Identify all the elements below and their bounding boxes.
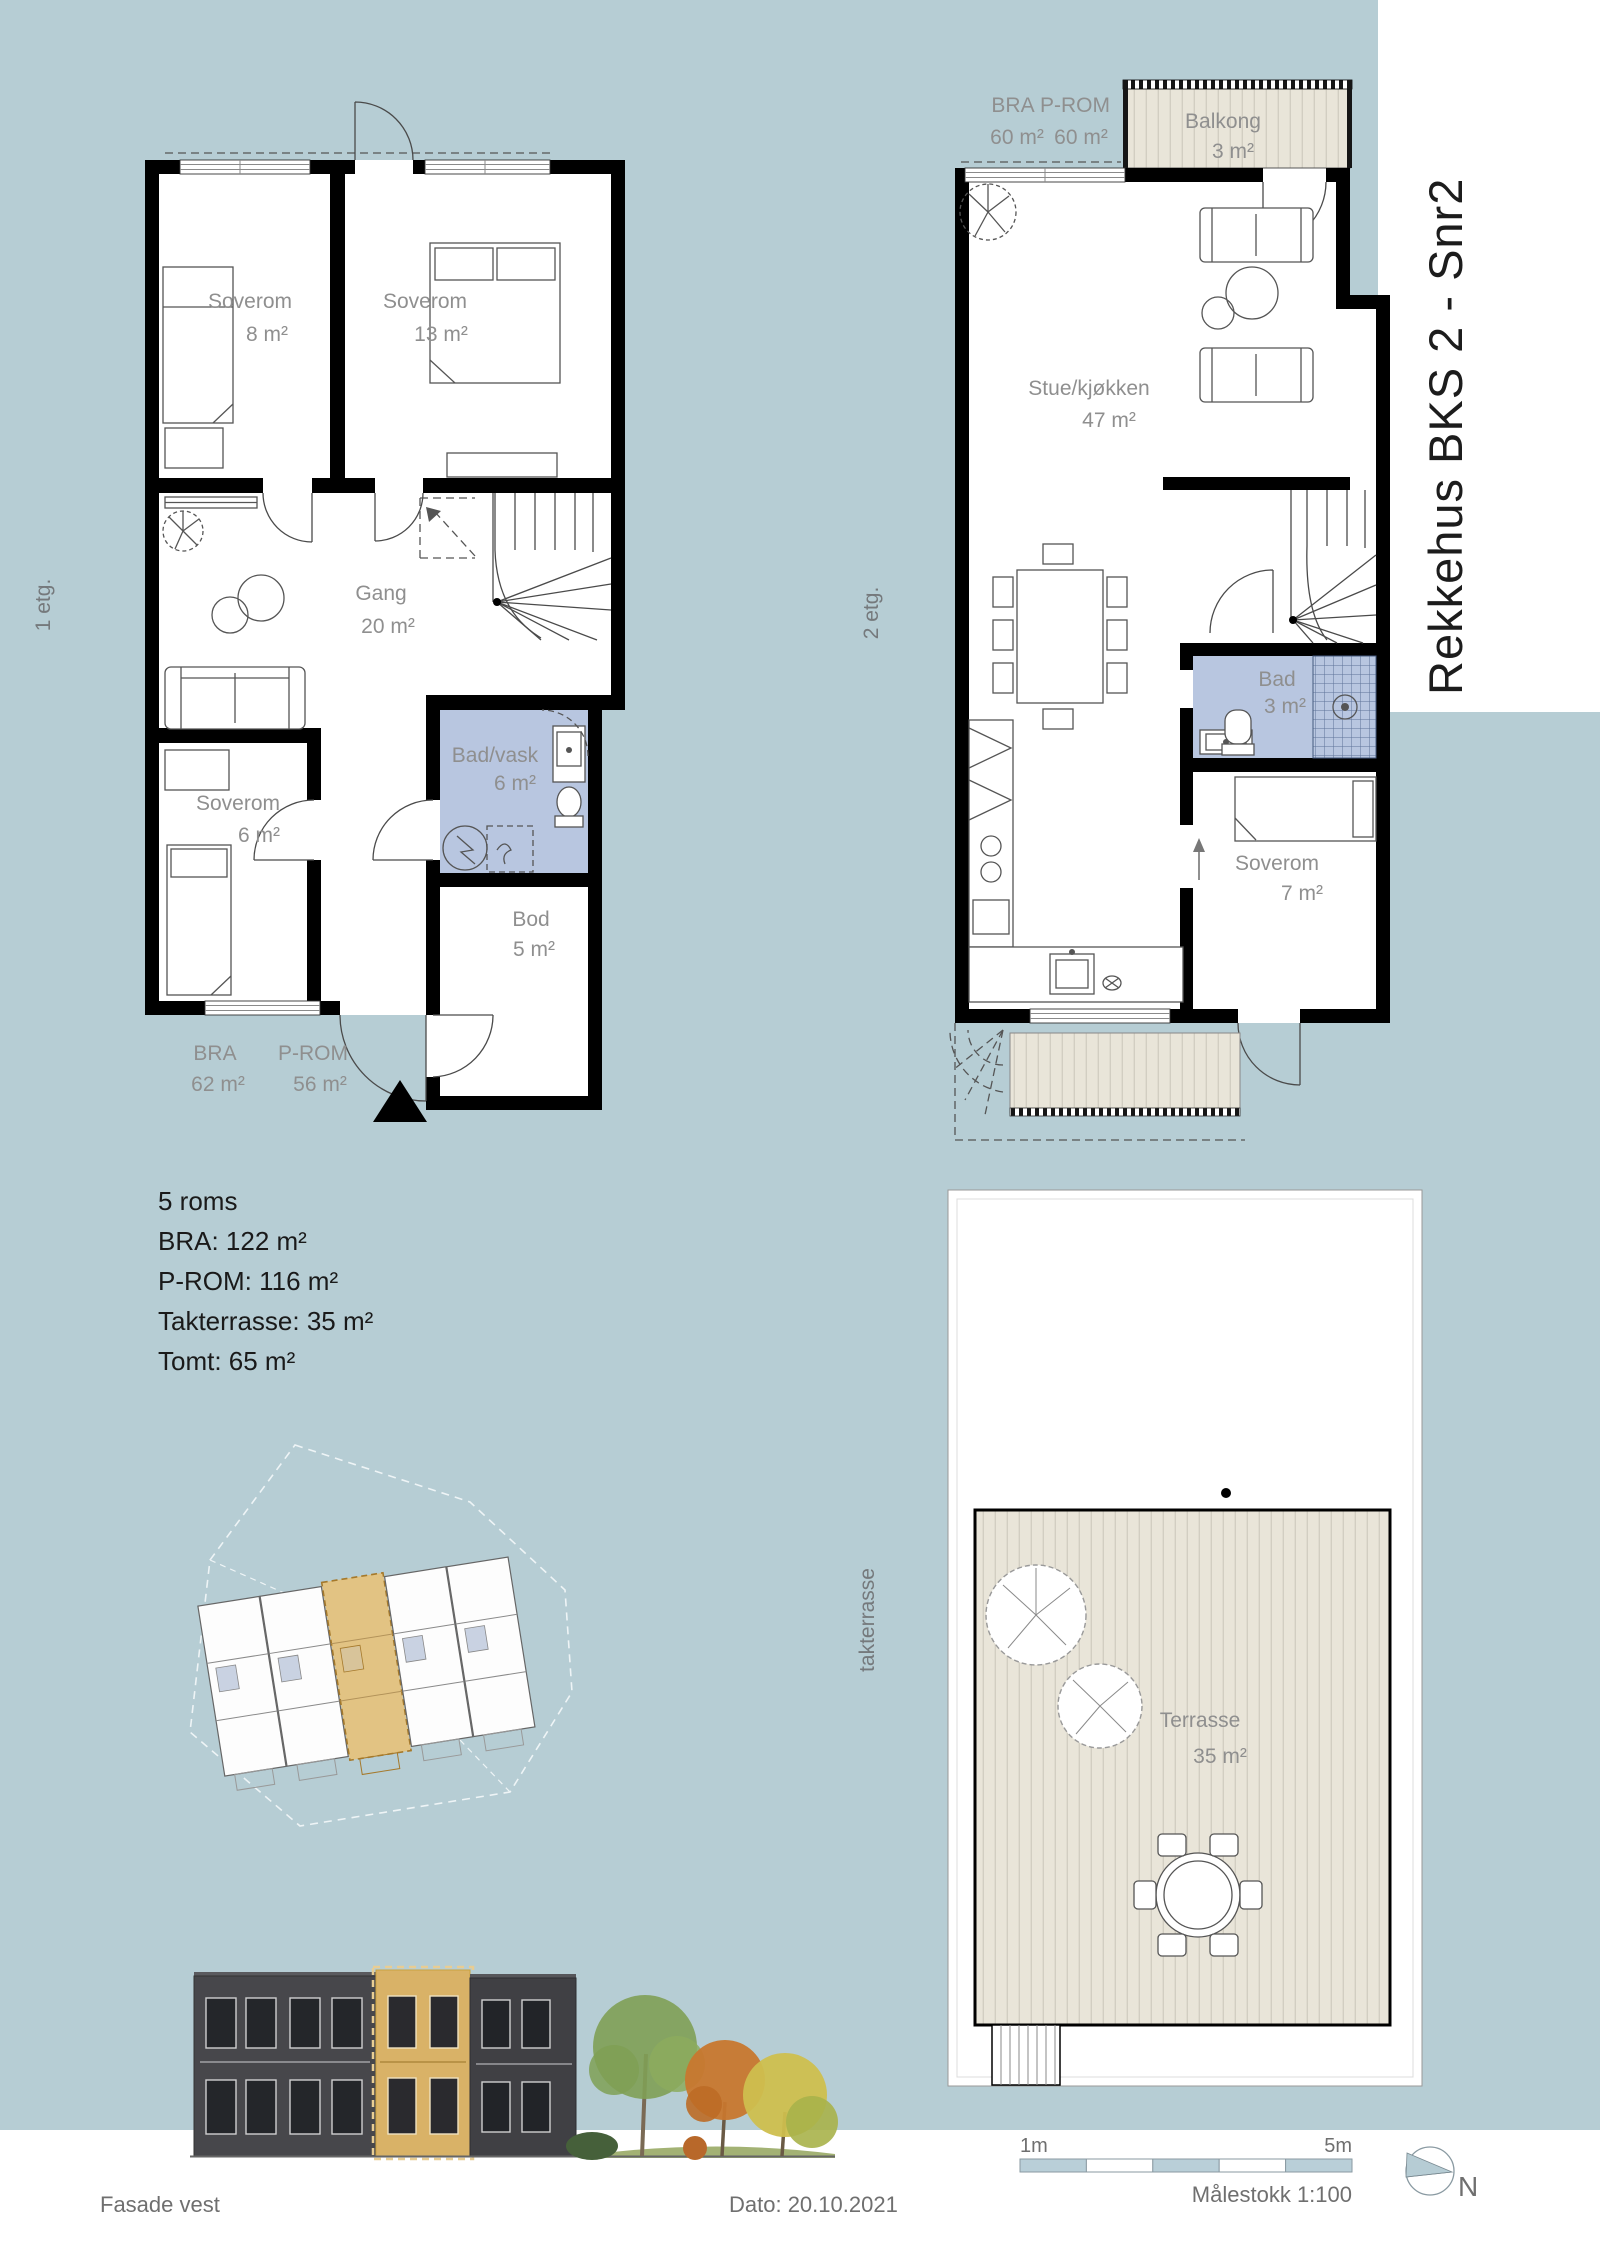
- room-area: 13 m²: [414, 323, 468, 346]
- room-area: 6 m²: [238, 824, 280, 847]
- scale-end-label: 5m: [1324, 2135, 1352, 2157]
- floor-plan-sheet: Rekkehus BKS 2 - Snr2 1 etg. 2 etg. takt…: [0, 0, 1600, 2263]
- bra-label: BRA: [991, 94, 1034, 117]
- room-label: Bod: [512, 908, 549, 931]
- room-label: Stue/kjøkken: [1028, 377, 1149, 400]
- room-area: 3 m²: [1264, 695, 1306, 718]
- roof-terrace-plan: Terrasse 35 m²: [948, 1190, 1422, 2086]
- room-area: 47 m²: [1082, 409, 1136, 432]
- shrub-symbol: [683, 2136, 707, 2160]
- floor2-side-label: 2 etg.: [860, 587, 883, 640]
- summary-terrace: Takterrasse: 35 m²: [158, 1306, 374, 1336]
- summary-plot: Tomt: 65 m²: [158, 1346, 296, 1376]
- room-area: 7 m²: [1281, 882, 1323, 905]
- roof-hatch-symbol: [992, 2025, 1060, 2085]
- facade-building-highlighted: [373, 1967, 473, 2159]
- date-label: Dato: 20.10.2021: [729, 2192, 898, 2217]
- room-label: Terrasse: [1160, 1709, 1241, 1732]
- sofa-symbol: [165, 667, 305, 729]
- vent-dot: [1221, 1488, 1231, 1498]
- room-area: 5 m²: [513, 938, 555, 961]
- room-area: 20 m²: [361, 615, 415, 638]
- scale-caption: Målestokk 1:100: [1192, 2182, 1352, 2207]
- facade-building-right: [470, 1974, 576, 2156]
- prom-value: 56 m²: [293, 1073, 347, 1096]
- room-area: 3 m²: [1212, 140, 1254, 163]
- floor-plan-1: Soverom 8 m² Soverom 13 m² Gang 20 m² So…: [145, 102, 625, 1122]
- scale-start-label: 1m: [1020, 2135, 1048, 2157]
- room-label: Soverom: [1235, 852, 1319, 875]
- room-area: 35 m²: [1193, 1745, 1247, 1768]
- room-label: Soverom: [196, 792, 280, 815]
- floor-plan-2: BRA 60 m² P-ROM 60 m² Balkong 3 m² Stue/…: [950, 80, 1390, 1140]
- bra-value: 60 m²: [990, 126, 1044, 149]
- toilet-symbol: [1222, 710, 1254, 755]
- summary-bra: BRA: 122 m²: [158, 1226, 307, 1256]
- facade-building-left: [194, 1972, 376, 2156]
- room-label: Balkong: [1185, 110, 1261, 133]
- summary-prom: P-ROM: 116 m²: [158, 1266, 338, 1296]
- prom-label: P-ROM: [278, 1042, 348, 1065]
- bra-value: 62 m²: [191, 1073, 245, 1096]
- summary-rooms: 5 roms: [158, 1186, 237, 1216]
- bush-symbol: [566, 2132, 618, 2160]
- facade-caption: Fasade vest: [100, 2192, 220, 2217]
- room-label: Soverom: [208, 290, 292, 313]
- single-bed-symbol: [165, 750, 231, 995]
- room-label: Bad: [1258, 668, 1295, 691]
- sink-symbol: [553, 726, 585, 782]
- sheet-title: Rekkehus BKS 2 - Snr2: [1419, 178, 1472, 695]
- bra-label: BRA: [193, 1042, 236, 1065]
- prom-label: P-ROM: [1040, 94, 1110, 117]
- room-label: Bad/vask: [452, 744, 539, 767]
- room-area: 6 m²: [494, 772, 536, 795]
- wardrobe-symbol: [165, 497, 257, 508]
- room-label: Gang: [355, 582, 406, 605]
- room-label: Soverom: [383, 290, 467, 313]
- title-strip: [1378, 0, 1600, 712]
- prom-value: 60 m²: [1054, 126, 1108, 149]
- toilet-symbol: [555, 787, 583, 827]
- room-area: 8 m²: [246, 323, 288, 346]
- floor1-side-label: 1 etg.: [32, 579, 55, 632]
- sofa-symbol: [1200, 208, 1313, 262]
- sofa-symbol: [1200, 348, 1313, 402]
- north-label: N: [1458, 2171, 1478, 2202]
- roof-side-label: takterrasse: [856, 1568, 879, 1672]
